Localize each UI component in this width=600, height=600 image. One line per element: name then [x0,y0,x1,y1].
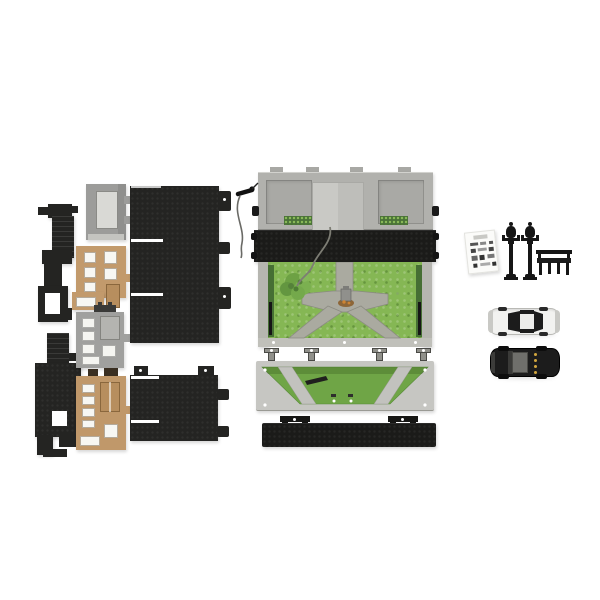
car-gold-light [534,365,537,368]
car-wheel [536,346,547,351]
trim2-top-column [47,333,69,365]
car-bumper-front [488,310,493,333]
window-opening [102,345,116,357]
decal-sheet [464,229,499,274]
window-opening [82,318,95,328]
clip-stem [308,352,315,361]
bench-leg [557,262,560,274]
window-opening [84,282,96,292]
panel-body [130,186,219,343]
mounting-clip [416,348,432,362]
window-opening [84,267,96,278]
clip-hole [378,349,381,352]
clip-hole [422,349,425,352]
frame-right-bar [118,184,126,240]
car-gold-light [534,359,537,362]
under-plate-svg [256,361,434,411]
cable [297,227,330,286]
decal-mark [471,255,477,261]
curb-body [262,423,436,447]
car-wheel [498,307,507,311]
frame-inner-panel [96,191,118,229]
decal-mark [480,262,490,266]
facade3-panel-divider [109,382,111,412]
decal-mark [473,264,477,268]
park-bench [536,250,572,276]
decal-mark [489,247,494,252]
panel-notch [131,239,163,242]
trim2-hole [52,411,67,426]
bench-leg [566,262,569,275]
window-opening [104,268,117,280]
lamp-base-plate [523,277,537,280]
mounting-clip [372,348,388,362]
window-opening [82,344,95,354]
car-wheel [539,307,548,311]
panel-tab [217,426,229,437]
panel-tab [217,389,229,400]
screw-hole [263,403,266,406]
car-wheel [539,332,548,336]
gray-door-frame [86,184,126,240]
facade2-raised-panel [100,316,120,340]
car-wheel [498,332,507,336]
bench-leg [539,262,542,275]
window-opening [82,420,95,428]
screw-hole [333,400,336,403]
lamp-base-plate [504,277,518,280]
car-roof [520,314,534,329]
wire-and-connector [225,165,445,305]
wire-connector-bar [238,190,252,194]
car-gold-light [534,353,537,356]
clip-stem [268,352,275,361]
tan-facade-tall [76,376,132,452]
lamp-pole [509,244,513,276]
path-leg-left [289,306,342,338]
window-opening [104,424,118,438]
mounting-clip [304,348,320,362]
fence-right [418,302,421,335]
clip-stem [420,352,427,361]
ramp-tick [348,394,353,397]
toy-car-black [490,348,560,378]
under-plate [256,361,434,411]
black-trim-piece-lower [33,333,81,457]
clip-hole [310,349,313,352]
panel-notch [131,186,161,188]
car-wheel [536,374,547,379]
car-roof [512,352,528,373]
facade2-tab [122,334,130,342]
car-rear-window [534,311,543,332]
panel-notch [131,293,163,296]
trim-ring-hole [45,293,60,314]
clip-hole [204,369,207,372]
panel-notch [131,376,159,379]
wire-connector-tip [252,183,258,189]
window-opening [82,384,95,393]
hanging-wire [237,196,242,258]
street-lamp [502,222,520,280]
decal-mark [470,242,478,246]
decal-mark [492,262,496,266]
trim-tab-left [38,207,48,215]
trim-tab-right [70,206,78,213]
decal-mark [489,241,493,244]
lamp-pole [528,244,532,276]
screw-hole [423,368,426,371]
curb-strip [262,423,436,447]
screw-hole [263,368,266,371]
frame-base [88,234,124,240]
lamp-lantern [506,226,516,238]
clip-hole [139,369,142,372]
tan-facade-small [76,246,134,312]
path-leg-right [347,306,400,338]
bench-leg [548,262,551,274]
window-opening [82,408,95,417]
clip-hole [270,349,273,352]
window-opening [80,436,100,446]
decal-mark [479,255,484,260]
lamp-lantern [525,226,535,238]
decal-mark [487,254,494,259]
window-opening [82,396,95,405]
decal-mark [480,241,486,245]
mounting-clip [264,348,280,362]
panel-body [130,375,218,441]
car-gold-light [534,371,537,374]
facade2-cap-post [108,302,112,306]
decal-mark [473,234,487,239]
window-opening [82,331,95,341]
toy-car-white [488,308,560,336]
car-bumper-rear [555,310,560,333]
screw-hole [423,403,426,406]
car-windshield [508,311,520,332]
trim2-base-bar [43,449,67,457]
facade2-cap-post [98,302,102,306]
fence-left [269,302,272,335]
car-bumper-front [491,352,495,373]
window-opening [104,251,117,264]
clip-hole [401,418,404,421]
screw-hole [350,400,353,403]
window-opening [82,356,100,365]
window-opening [76,297,96,307]
ramp-tick [331,394,336,397]
product-photo-canvas [0,0,600,600]
panel-notch [131,420,159,423]
decal-mark [478,247,487,251]
car-wheel [498,374,509,379]
clip-hole [293,418,296,421]
decal-mark [471,249,476,254]
gray-facade [76,312,130,370]
trim2-foot-right [59,433,77,447]
window-opening [84,252,96,263]
car-side-window [520,329,534,333]
trim-foot [60,308,72,320]
clip-stem [376,352,383,361]
black-panel-large [130,186,232,343]
black-panel-small [130,375,230,441]
